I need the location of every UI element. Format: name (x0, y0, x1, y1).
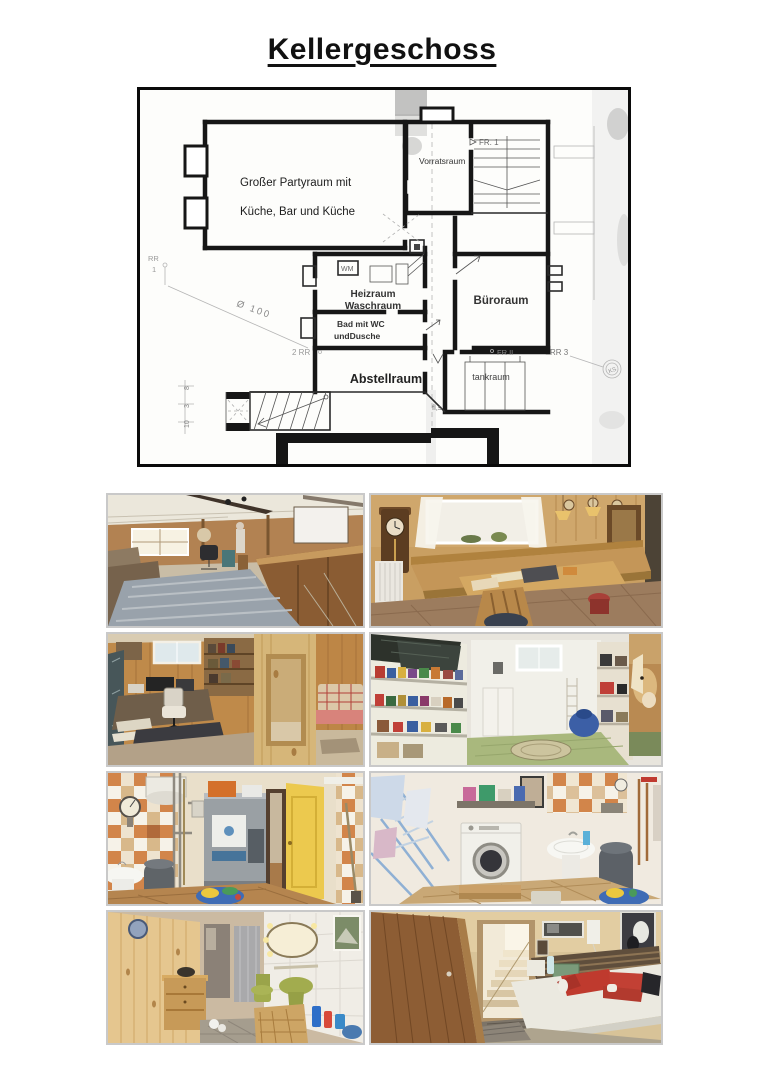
room-label-waschraum: Waschraum (345, 301, 401, 312)
annotation-dim3: 10 (184, 420, 191, 428)
photo-vorratsraum (369, 632, 663, 767)
annotation-fr1: FR. 1 (479, 138, 499, 147)
photo-heizraum (106, 771, 365, 906)
page-title: Kellergeschoss (0, 33, 764, 67)
annotation-rr: RR (148, 254, 159, 263)
annotation-frii: FR II (497, 348, 513, 357)
annotation-diameter: Ø 100 (235, 298, 272, 321)
room-label-bad-line1: Bad mit WC (337, 319, 385, 329)
photo-grid (106, 493, 663, 1045)
room-label-bad-line2: undDusche (334, 331, 381, 341)
annotation-dim1: 8 (184, 386, 191, 390)
photo-waschraum-image (371, 773, 661, 904)
photo-partyroom (106, 493, 365, 628)
room-label-partyraum-line1: Großer Partyraum mit (240, 177, 352, 189)
photo-arbeitszimmer-image (108, 634, 363, 765)
photo-arbeitszimmer (106, 632, 365, 767)
photo-bad (106, 910, 365, 1045)
photo-essecke-image (371, 495, 661, 626)
room-label-abstellraum: Abstellraum (350, 372, 422, 386)
annotation-rr2: 2 RR (292, 348, 310, 357)
photo-heizraum-image (108, 773, 363, 904)
annotation-fls: fl,s (432, 403, 442, 412)
floorplan-image: Großer Partyraum mit Küche, Bar und Küch… (140, 90, 628, 464)
room-label-tankraum: tankraum (472, 372, 510, 382)
annotation-wm: WM (341, 266, 354, 273)
floorplan-frame: Großer Partyraum mit Küche, Bar und Küch… (137, 87, 631, 467)
room-label-partyraum-line2: Küche, Bar und Küche (240, 206, 355, 218)
photo-essecke (369, 493, 663, 628)
annotation-dim2: 3 (184, 404, 191, 408)
photo-partyroom-image (108, 495, 363, 626)
room-label-vorratsraum: Vorratsraum (419, 156, 465, 166)
page-title-text: Kellergeschoss (268, 33, 497, 66)
document-page: Kellergeschoss (0, 0, 764, 1080)
room-label-bueroraum: Büroraum (474, 295, 529, 307)
photo-waschraum (369, 771, 663, 906)
annotation-rr3: RR 3 (550, 348, 569, 357)
photo-bad-image (108, 912, 363, 1043)
annotation-rr-nr: 1 (152, 265, 156, 274)
photo-kellerraum-image (371, 912, 661, 1043)
room-label-heizraum: Heizraum (350, 289, 395, 300)
photo-kellerraum (369, 910, 663, 1045)
photo-vorratsraum-image (371, 634, 661, 765)
